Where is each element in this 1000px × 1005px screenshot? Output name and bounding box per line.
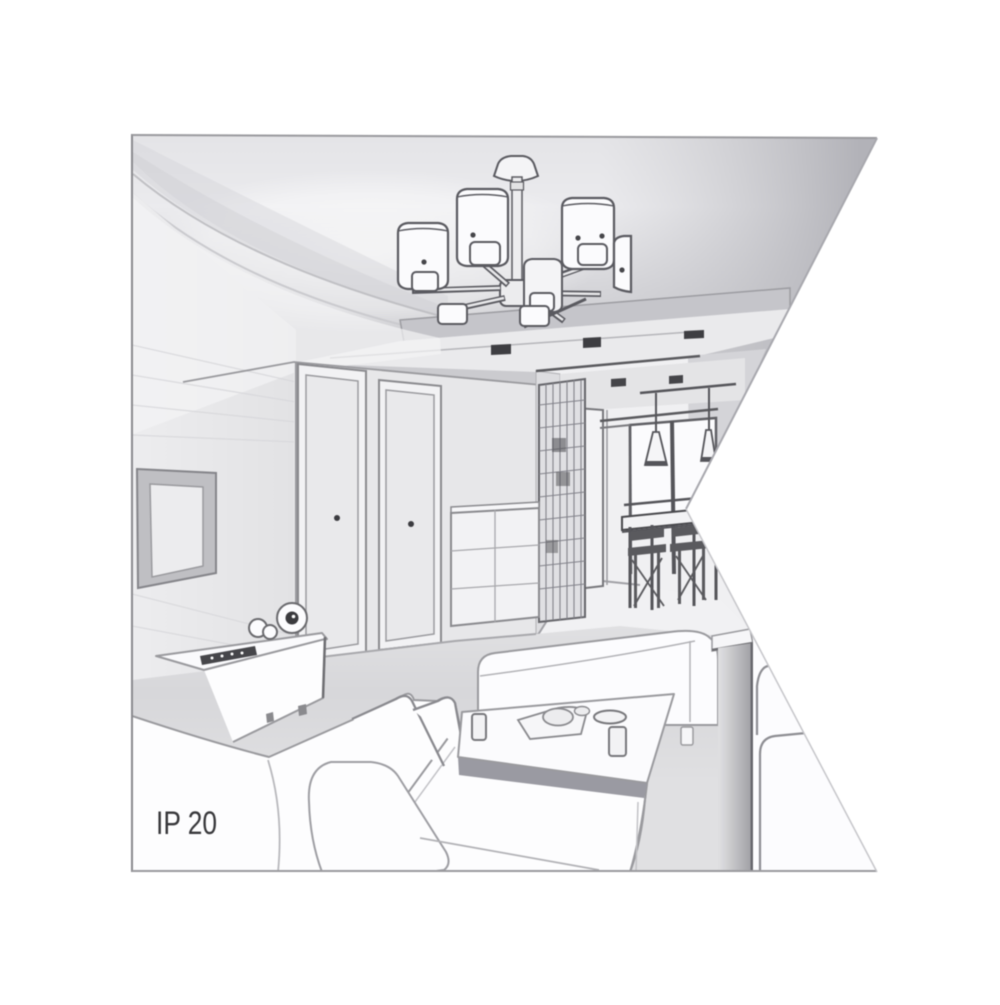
svg-text:IP 20: IP 20 — [156, 805, 217, 841]
